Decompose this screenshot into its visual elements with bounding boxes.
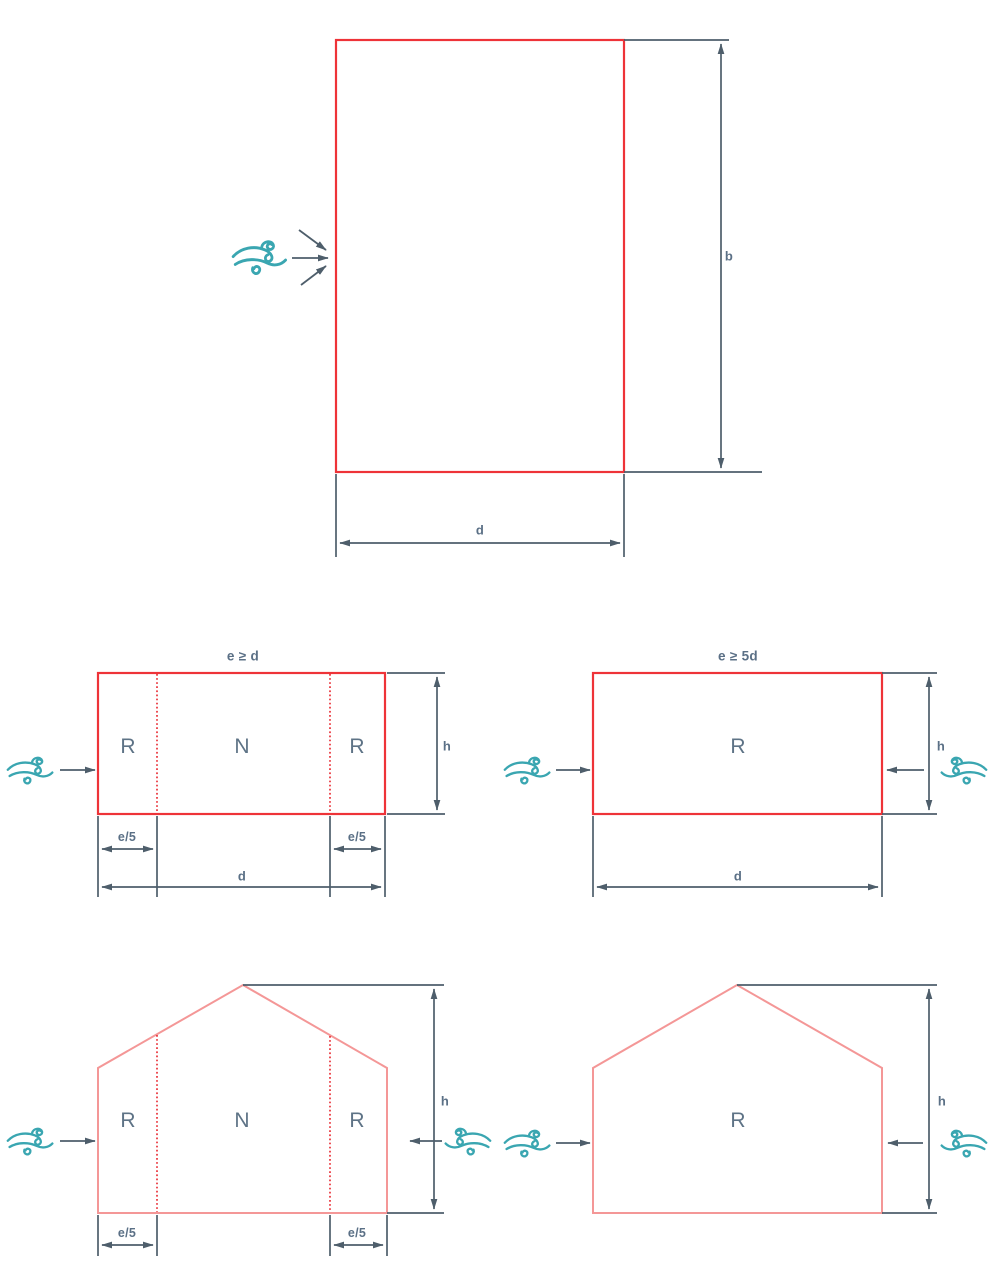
wind-icon <box>8 758 53 784</box>
zone-label-r: R <box>730 735 745 759</box>
plan-view-diagram <box>233 40 762 557</box>
wind-icon <box>8 1129 53 1155</box>
dim-label-h: h <box>443 739 451 754</box>
elevation-e-ge-5d-diagram <box>505 673 986 897</box>
wind-icon <box>446 1129 491 1155</box>
elevation-e-ge-d-diagram <box>8 673 445 897</box>
dim-label-d: d <box>476 523 484 538</box>
zone-label-r: R <box>349 735 364 759</box>
condition-title: e ≥ 5d <box>718 649 758 664</box>
dim-label-d: d <box>734 869 742 884</box>
dim-label-d: d <box>238 869 246 884</box>
dim-label-h: h <box>938 1094 946 1109</box>
wind-arrow <box>301 266 326 285</box>
wind-icon <box>505 1131 550 1157</box>
plan-building-outline <box>336 40 624 472</box>
dim-label-e5: e/5 <box>348 1226 366 1240</box>
wind-zone-figure: b d e ≥ d R N R h e/5 e/5 d e ≥ 5d R h d… <box>0 0 992 1270</box>
dim-label-e5: e/5 <box>118 830 136 844</box>
condition-title: e ≥ d <box>227 649 259 664</box>
gable-outline <box>593 985 882 1213</box>
dim-label-e5: e/5 <box>348 830 366 844</box>
zone-label-r: R <box>120 735 135 759</box>
dim-label-b: b <box>725 249 733 264</box>
zone-label-r: R <box>120 1109 135 1133</box>
gable-elevation-r-diagram <box>505 985 986 1213</box>
zone-label-n: N <box>234 1109 249 1133</box>
zone-label-n: N <box>234 735 249 759</box>
wind-icon <box>505 758 550 784</box>
gable-outline <box>98 985 387 1213</box>
dim-label-e5: e/5 <box>118 1226 136 1240</box>
dim-label-h: h <box>441 1094 449 1109</box>
wind-icon <box>942 758 987 784</box>
wind-arrow <box>299 230 326 250</box>
wind-icon <box>942 1131 987 1157</box>
zone-label-r: R <box>730 1109 745 1133</box>
wind-icon <box>233 242 285 274</box>
dim-label-h: h <box>937 739 945 754</box>
diagram-geometry <box>0 0 992 1270</box>
zone-label-r: R <box>349 1109 364 1133</box>
